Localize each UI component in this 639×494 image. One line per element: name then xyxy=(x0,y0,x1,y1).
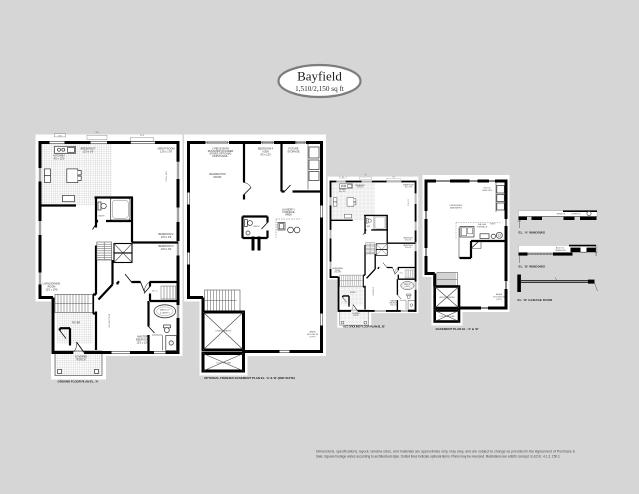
svg-text:MAKE UP: MAKE UP xyxy=(160,309,170,312)
svg-text:9'0 x 11'0: 9'0 x 11'0 xyxy=(260,154,271,157)
svg-text:BATH: BATH xyxy=(99,215,105,218)
svg-text:UNEXCAVATED: UNEXCAVATED xyxy=(439,296,455,299)
svg-text:SHELVES: SHELVES xyxy=(482,190,492,192)
svg-text:EL. 'A' WINDOWS: EL. 'A' WINDOWS xyxy=(519,231,546,235)
svg-text:9'0 x 12'0: 9'0 x 12'0 xyxy=(54,158,65,161)
svg-text:Dimensions, specifications, la: Dimensions, specifications, layout, wind… xyxy=(316,449,576,453)
svg-text:FOYER: FOYER xyxy=(72,322,81,325)
svg-text:12'0 x 9'0: 12'0 x 9'0 xyxy=(83,151,94,154)
svg-text:TRANSOM: TRANSOM xyxy=(555,249,566,252)
svg-text:EL. 'B' WINDOWS: EL. 'B' WINDOWS xyxy=(519,264,546,268)
svg-text:WHAT IF: WHAT IF xyxy=(557,213,566,216)
svg-text:17'8 x 11'6: 17'8 x 11'6 xyxy=(166,171,168,182)
svg-text:(OPT): (OPT) xyxy=(496,299,502,301)
svg-text:ROOM: ROOM xyxy=(214,176,222,179)
svg-text:Sale. Square footage varies ac: Sale. Square footage varies according to… xyxy=(316,454,560,458)
svg-text:Bayfield: Bayfield xyxy=(297,69,342,84)
svg-text:AREA: AREA xyxy=(285,214,292,217)
svg-text:COLD CELLAR: COLD CELLAR xyxy=(216,361,232,364)
svg-text:W.I.C.: W.I.C. xyxy=(152,291,158,293)
svg-text:(OPT): (OPT) xyxy=(310,337,316,339)
svg-text:EL. 'B' GARAGE DOOR: EL. 'B' GARAGE DOOR xyxy=(518,298,554,302)
svg-text:OPTIONAL FINISHED BASEMENT PLA: OPTIONAL FINISHED BASEMENT PLAN EL. 'A' … xyxy=(204,376,295,380)
svg-text:1,510/2,150 sq ft: 1,510/2,150 sq ft xyxy=(295,85,344,93)
svg-text:UNEXCAVATED: UNEXCAVATED xyxy=(216,330,232,333)
svg-text:PORCH: PORCH xyxy=(76,359,85,362)
svg-text:11'6 x 17'8: 11'6 x 17'8 xyxy=(160,150,172,153)
svg-text:GROUND FLOOR PLAN EL. 'A': GROUND FLOOR PLAN EL. 'A' xyxy=(58,380,99,384)
svg-text:& VANITY: & VANITY xyxy=(160,311,170,314)
svg-text:COLD CELLAR: COLD CELLAR xyxy=(439,315,455,318)
svg-text:BASEMENT: BASEMENT xyxy=(450,207,463,210)
svg-text:FURNACE: FURNACE xyxy=(477,225,488,228)
svg-text:10'0 x 9'6: 10'0 x 9'6 xyxy=(161,236,172,239)
svg-text:11'0 x 19'6: 11'0 x 19'6 xyxy=(46,289,58,292)
svg-text:STORAGE: STORAGE xyxy=(287,151,300,154)
svg-text:12'0 x 13'0: 12'0 x 13'0 xyxy=(137,342,150,345)
svg-text:BASEMENT PLAN EL. 'A' & 'B': BASEMENT PLAN EL. 'A' & 'B' xyxy=(436,327,479,331)
svg-text:EGRESS: EGRESS xyxy=(571,214,581,216)
svg-text:FINISH AVAIL.: FINISH AVAIL. xyxy=(212,155,228,158)
svg-text:ALT. GROUND FLOOR PLAN EL. 'B': ALT. GROUND FLOOR PLAN EL. 'B' xyxy=(343,325,385,329)
svg-text:10'0 x 9'0: 10'0 x 9'0 xyxy=(161,248,172,251)
svg-text:BATH: BATH xyxy=(254,225,260,228)
svg-text:15'8 SUITE W.: 15'8 SUITE W. xyxy=(109,313,111,328)
svg-text:HWT: HWT xyxy=(491,224,497,226)
